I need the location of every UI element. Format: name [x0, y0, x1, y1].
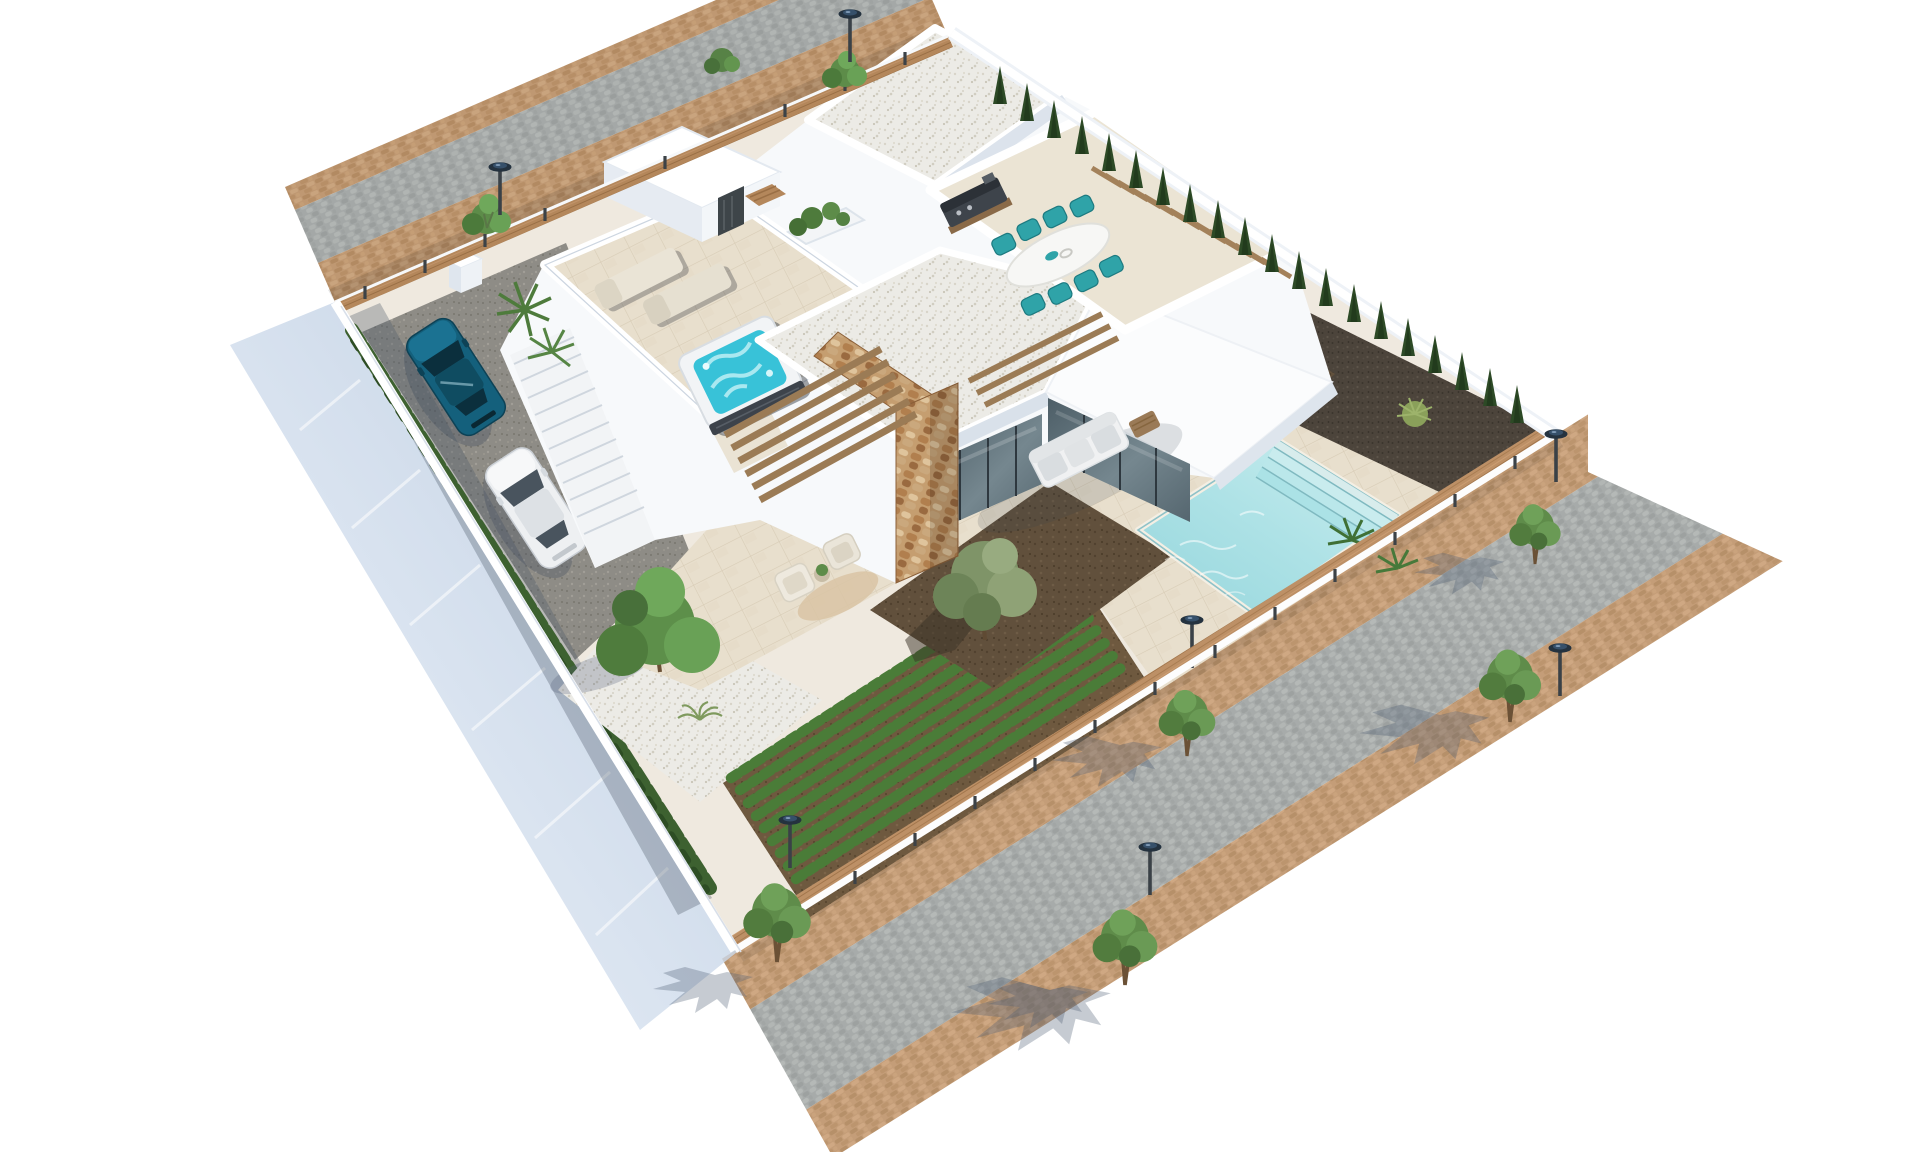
render-stage: Aerial 3D architectural rendering of a m…: [0, 0, 1920, 1152]
render-canvas: Aerial 3D architectural rendering of a m…: [0, 0, 1920, 1152]
